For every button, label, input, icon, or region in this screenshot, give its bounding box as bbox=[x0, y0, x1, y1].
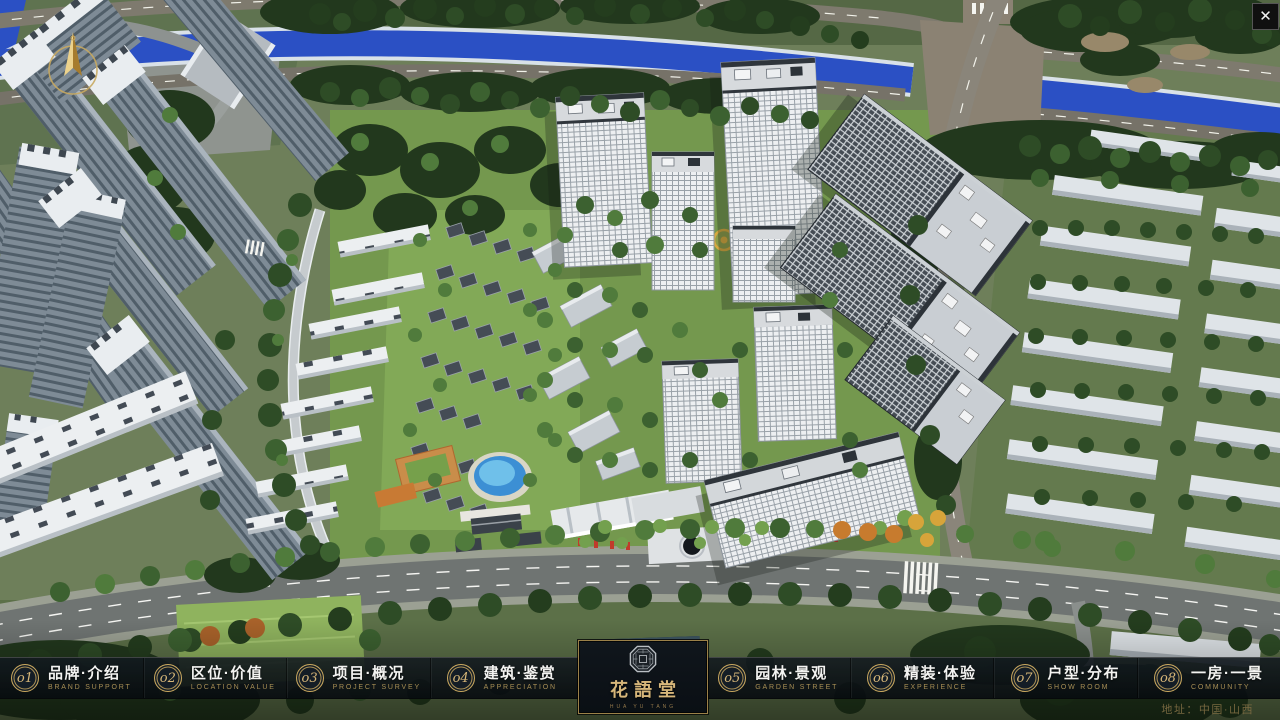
nav-label-zh: 户型·分布 bbox=[1048, 666, 1121, 681]
nav-label-zh: 园林·景观 bbox=[755, 666, 828, 681]
nav-item-project[interactable]: o3 项目·概况 PROJECT SURVEY bbox=[286, 658, 430, 698]
nav-item-garden[interactable]: o5 园林·景观 GARDEN STREET bbox=[707, 658, 850, 698]
nav-label-zh: 品牌·介绍 bbox=[48, 666, 121, 681]
nav-badge-01: o1 bbox=[11, 664, 39, 692]
seal-emblem-icon bbox=[629, 645, 657, 673]
project-name: 花語堂 bbox=[604, 676, 682, 702]
nav-label-en: LOCATION VALUE bbox=[191, 684, 276, 691]
nav-badge-04: o4 bbox=[447, 664, 475, 692]
sales-presentation-screen: ✕ o1 品牌·介绍 BRAND SUPPORT o2 区位·价值 LOCATI… bbox=[0, 0, 1280, 720]
nav-label-zh: 一房·一景 bbox=[1191, 666, 1264, 681]
nav-label-zh: 精装·体验 bbox=[904, 666, 977, 681]
nav-label-zh: 建筑·鉴赏 bbox=[484, 666, 557, 681]
nav-badge-05: o5 bbox=[718, 664, 746, 692]
nav-badge-02: o2 bbox=[154, 664, 182, 692]
nav-label-en: EXPERIENCE bbox=[904, 684, 967, 691]
nav-label-en: GARDEN STREET bbox=[755, 684, 838, 691]
nav-label-en: BRAND SUPPORT bbox=[48, 684, 132, 691]
nav-label-en: PROJECT SURVEY bbox=[333, 684, 421, 691]
close-icon: ✕ bbox=[1259, 9, 1272, 24]
nav-label-en: APPRECIATION bbox=[484, 684, 557, 691]
nav-right-group: o5 园林·景观 GARDEN STREET o6 精装·体验 EXPERIEN… bbox=[707, 658, 1280, 698]
nav-badge-03: o3 bbox=[296, 664, 324, 692]
nav-item-brand[interactable]: o1 品牌·介绍 BRAND SUPPORT bbox=[0, 658, 143, 698]
compass-icon bbox=[38, 28, 110, 106]
nav-number: o7 bbox=[1016, 671, 1032, 686]
nav-item-interior[interactable]: o6 精装·体验 EXPERIENCE bbox=[850, 658, 994, 698]
site-map-render bbox=[0, 0, 1280, 720]
project-address: 地址：中国·山西 bbox=[1161, 701, 1254, 717]
nav-number: o6 bbox=[873, 671, 889, 686]
nav-item-views[interactable]: o8 一房·一景 COMMUNITY bbox=[1137, 658, 1280, 698]
nav-label-zh: 区位·价值 bbox=[191, 666, 264, 681]
nav-item-location[interactable]: o2 区位·价值 LOCATION VALUE bbox=[143, 658, 287, 698]
project-name-latin: HUA YU TANG bbox=[610, 704, 676, 710]
nav-number: o1 bbox=[17, 671, 33, 686]
nav-label-en: COMMUNITY bbox=[1191, 684, 1250, 691]
nav-item-architecture[interactable]: o4 建筑·鉴赏 APPRECIATION bbox=[430, 658, 574, 698]
nav-number: o3 bbox=[302, 671, 318, 686]
project-logo-plate[interactable]: 花語堂 HUA YU TANG bbox=[578, 640, 708, 714]
nav-label-zh: 项目·概况 bbox=[333, 666, 406, 681]
nav-badge-07: o7 bbox=[1011, 664, 1039, 692]
nav-number: o5 bbox=[724, 671, 740, 686]
nav-badge-08: o8 bbox=[1154, 664, 1182, 692]
nav-number: o4 bbox=[453, 671, 469, 686]
close-button[interactable]: ✕ bbox=[1252, 3, 1279, 30]
nav-item-floorplans[interactable]: o7 户型·分布 SHOW ROOM bbox=[993, 658, 1137, 698]
nav-number: o2 bbox=[160, 671, 176, 686]
nav-badge-06: o6 bbox=[867, 664, 895, 692]
nav-label-en: SHOW ROOM bbox=[1048, 684, 1110, 691]
nav-left-group: o1 品牌·介绍 BRAND SUPPORT o2 区位·价值 LOCATION… bbox=[0, 658, 573, 698]
nav-number: o8 bbox=[1160, 671, 1176, 686]
